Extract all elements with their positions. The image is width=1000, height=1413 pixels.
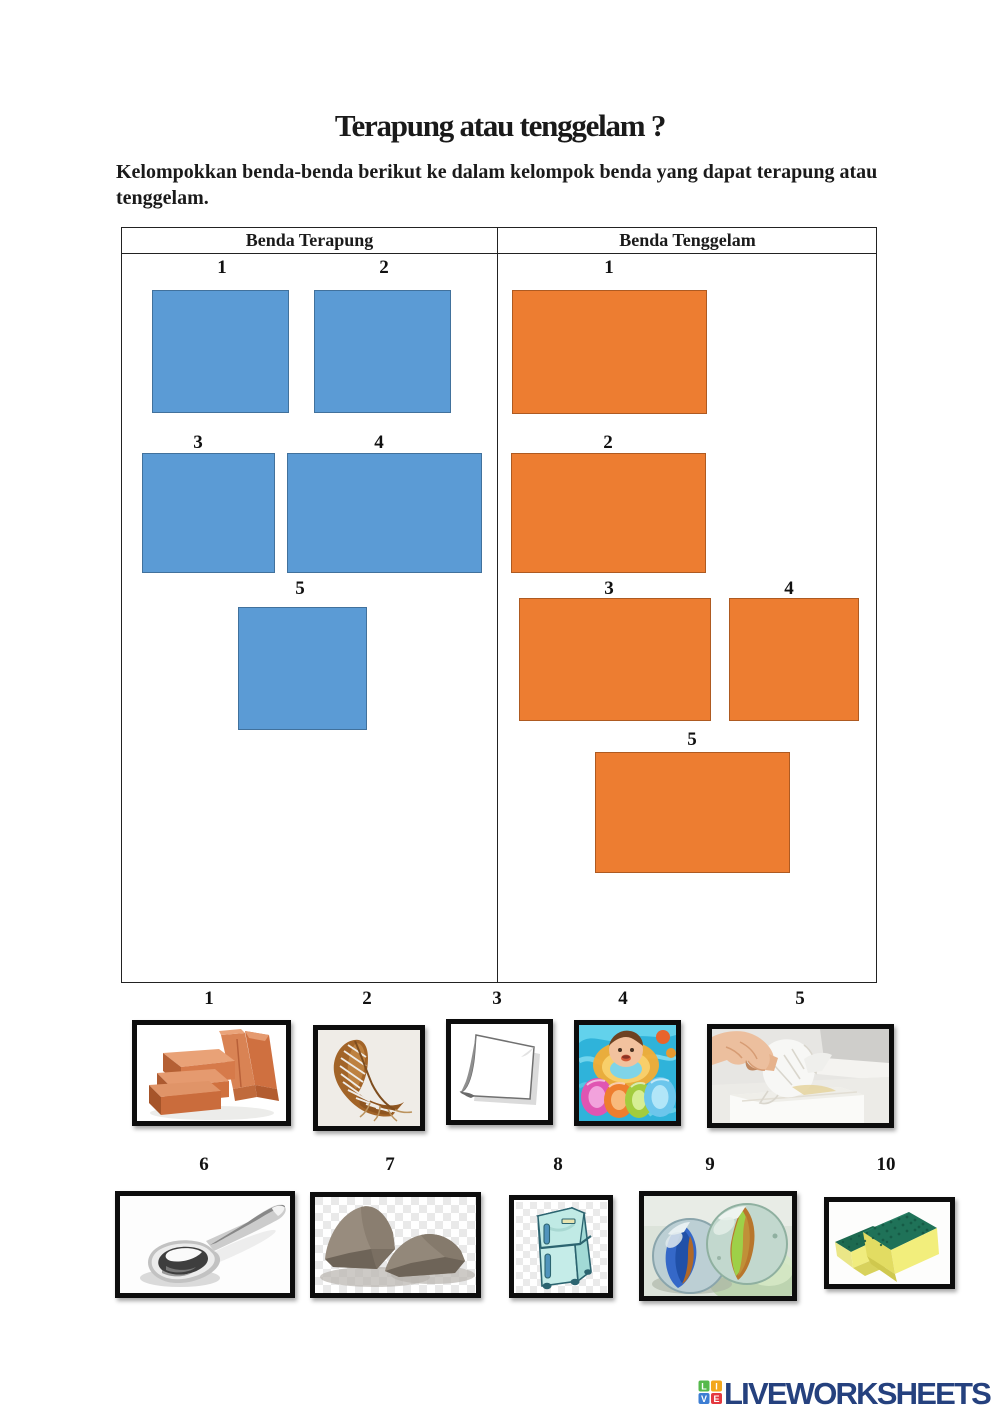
svg-text:L: L xyxy=(701,1382,707,1392)
svg-text:V: V xyxy=(701,1394,707,1404)
svg-text:E: E xyxy=(713,1394,719,1404)
svg-text:I: I xyxy=(715,1382,718,1392)
